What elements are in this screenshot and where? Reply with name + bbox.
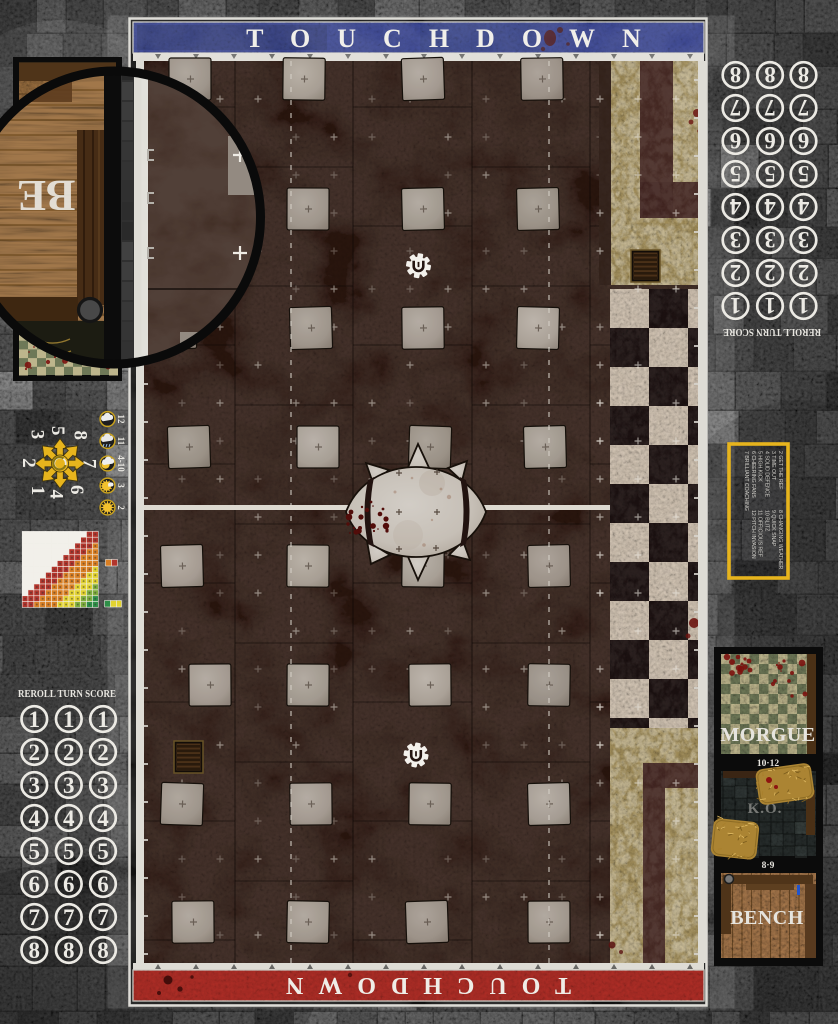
svg-text:4: 4	[46, 489, 67, 499]
svg-text:2: 2	[764, 260, 776, 285]
svg-text:7: 7	[63, 905, 75, 930]
svg-text:10 BLITZ: 10 BLITZ	[763, 510, 769, 531]
svg-text:1: 1	[63, 707, 75, 732]
svg-text:5: 5	[730, 161, 742, 186]
svg-text:4: 4	[729, 194, 741, 219]
svg-text:12: 12	[116, 415, 126, 425]
svg-text:8: 8	[63, 938, 75, 963]
svg-text:3: 3	[116, 483, 126, 488]
svg-text:MORGUE: MORGUE	[720, 724, 815, 746]
svg-text:4 SOLID DEFENCE: 4 SOLID DEFENCE	[763, 451, 769, 498]
svg-text:5: 5	[29, 839, 41, 864]
svg-text:1: 1	[29, 707, 41, 732]
svg-text:TOUCHDOWN: TOUCHDOWN	[246, 24, 668, 53]
svg-text:REROLL TURN SCORE: REROLL TURN SCORE	[723, 326, 821, 337]
svg-text:8 CHANGING WEATHER: 8 CHANGING WEATHER	[777, 510, 783, 570]
svg-text:7: 7	[97, 905, 109, 930]
svg-text:1: 1	[27, 486, 48, 496]
svg-text:7: 7	[79, 459, 100, 469]
svg-text:2: 2	[116, 505, 126, 510]
svg-text:4: 4	[764, 194, 776, 219]
svg-text:4: 4	[63, 806, 75, 831]
svg-text:7: 7	[764, 95, 776, 120]
svg-text:5: 5	[798, 161, 810, 186]
svg-text:7 BRILLIANT COACHING: 7 BRILLIANT COACHING	[743, 451, 749, 511]
svg-text:2: 2	[63, 740, 75, 765]
svg-text:8: 8	[97, 938, 109, 963]
svg-text:2: 2	[97, 740, 109, 765]
svg-text:1: 1	[764, 293, 776, 318]
svg-text:6: 6	[798, 128, 810, 153]
svg-text:2: 2	[730, 260, 742, 285]
svg-text:7: 7	[730, 95, 742, 120]
svg-text:3 TIME OUT: 3 TIME OUT	[770, 451, 776, 481]
svg-text:1: 1	[798, 293, 810, 318]
svg-text:7: 7	[29, 905, 41, 930]
svg-text:3: 3	[63, 773, 75, 798]
svg-text:5: 5	[47, 426, 68, 436]
svg-text:BENCH: BENCH	[730, 907, 804, 929]
svg-text:4: 4	[97, 806, 109, 831]
svg-text:3: 3	[26, 430, 47, 440]
svg-text:6: 6	[730, 128, 742, 153]
svg-text:1: 1	[730, 293, 742, 318]
svg-text:2: 2	[29, 740, 41, 765]
svg-text:3: 3	[730, 227, 742, 252]
svg-text:3: 3	[97, 773, 109, 798]
svg-text:3: 3	[764, 227, 776, 252]
svg-text:9 QUICK SNAP: 9 QUICK SNAP	[770, 510, 776, 547]
svg-text:6: 6	[97, 872, 109, 897]
svg-text:8: 8	[764, 62, 776, 87]
svg-text:6 CHEERING FANS: 6 CHEERING FANS	[750, 451, 756, 498]
svg-text:11 OFFICIOUS REF: 11 OFFICIOUS REF	[757, 510, 763, 557]
svg-text:BE: BE	[17, 171, 76, 220]
svg-text:5 HIGH KICK: 5 HIGH KICK	[757, 451, 763, 482]
svg-text:8·9: 8·9	[762, 861, 775, 871]
svg-text:2: 2	[798, 260, 810, 285]
svg-text:5: 5	[764, 161, 776, 186]
svg-text:1: 1	[97, 707, 109, 732]
svg-text:2: 2	[18, 458, 39, 468]
svg-text:8: 8	[730, 62, 742, 87]
svg-text:8: 8	[29, 938, 41, 963]
svg-text:8: 8	[798, 62, 810, 87]
svg-text:3: 3	[29, 773, 41, 798]
svg-text:5: 5	[97, 839, 109, 864]
svg-text:REROLL TURN SCORE: REROLL TURN SCORE	[18, 689, 116, 700]
svg-text:4: 4	[797, 194, 809, 219]
svg-text:6: 6	[63, 872, 75, 897]
svg-text:12 PITCH INVASION: 12 PITCH INVASION	[750, 510, 756, 559]
svg-text:7: 7	[798, 95, 810, 120]
svg-text:11: 11	[116, 437, 126, 446]
svg-text:2 GET THE REF: 2 GET THE REF	[777, 451, 783, 489]
svg-text:6: 6	[29, 872, 41, 897]
svg-text:8: 8	[70, 431, 91, 441]
svg-text:4: 4	[29, 806, 41, 831]
svg-text:TOUCHDOWN: TOUCHDOWN	[271, 972, 571, 998]
svg-text:3: 3	[798, 227, 810, 252]
svg-text:5: 5	[63, 839, 75, 864]
svg-text:4-10: 4-10	[116, 455, 126, 472]
svg-text:6: 6	[764, 128, 776, 153]
svg-text:6: 6	[66, 485, 87, 495]
